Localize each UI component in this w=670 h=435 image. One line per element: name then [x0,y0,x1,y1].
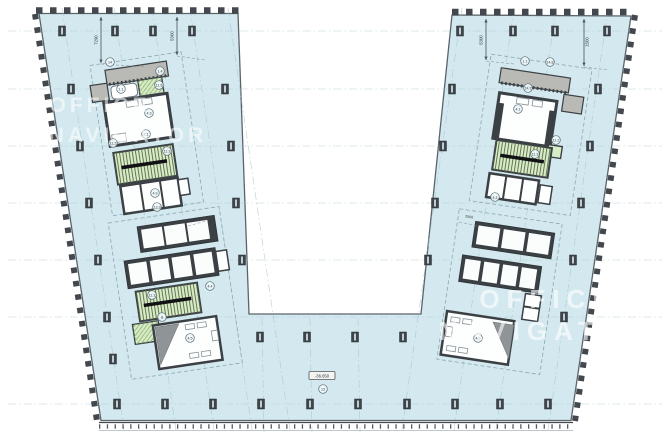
grid-label-text: 4.1 [516,107,521,111]
column-slit [499,401,501,408]
column-slit [97,257,99,264]
column-slit [454,401,456,408]
column-slit [427,257,429,264]
column-slit [88,200,90,207]
column-slit [442,143,444,150]
column-slit [402,334,404,341]
column-slit [164,401,166,408]
elevator-shaft [164,223,188,245]
column-slit [259,334,261,341]
floor-plan-page: 7290 5300 5300 1500 600 2500 -36.650 141… [0,0,670,435]
column-slit [152,28,154,35]
grid-label-text: 1.1 [119,87,124,91]
grid-label-text: 14 [108,60,112,64]
column-slit [106,314,108,321]
grid-label-text: 14.8 [547,60,554,64]
service-room [562,94,584,114]
elevator-shaft [193,252,214,276]
grid-label-text: 13 [321,387,325,391]
column-slit [451,86,453,93]
grid-label-text: 4.5 [188,336,193,340]
column-slit [554,28,556,35]
watermark-line2: NAVIGATOR [439,316,654,346]
elevator-shaft [463,259,481,281]
column-slit [70,86,72,93]
elevator-shaft [128,261,149,285]
column-slit [241,257,243,264]
column-slit [230,143,232,150]
dimension-text: 1500 [585,37,590,47]
elevator-shaft [526,233,551,255]
elevator-shaft [141,227,165,249]
grid-label-text: 1.4 [158,69,163,73]
column-slit [606,28,608,35]
floor-plan-svg: 7290 5300 5300 1500 600 2500 -36.650 141… [0,0,670,435]
elevator-shaft [481,262,499,284]
elevator-shaft [171,255,192,279]
column-slit [112,356,114,363]
grid-label-text: 4.4 [208,284,213,288]
grid-label-text: 1.1 [523,59,528,63]
grid-label-text: 13.3 [154,205,161,209]
column-slit [357,401,359,408]
grid-label-text: 11.3 [164,149,171,153]
watermark-line1: OFFICE [50,94,151,117]
grid-label-text: 11.5 [156,83,163,87]
grid-label-text: 1.1 [493,195,498,199]
side-room [216,250,230,271]
dimension-text: 5300 [479,35,484,45]
dimension-text: 7290 [94,35,99,45]
column-slit [235,200,237,207]
grid-label-text: 8 [161,315,163,319]
dimension-text: 5300 [170,31,175,41]
elevator-shaft [476,225,501,247]
column-slit [580,200,582,207]
column-slit [512,28,514,35]
grid-label-text: 11.3 [149,293,156,297]
column-slit [572,257,574,264]
column-slit [191,28,193,35]
column-slit [309,401,311,408]
column-slit [61,28,63,35]
column-slit [114,28,116,35]
elevator-shaft [501,229,526,251]
column-slit [116,401,118,408]
column-slit [589,143,591,150]
grid-label-text: 14.2 [525,86,532,90]
column-slit [597,86,599,93]
column-slit [406,401,408,408]
column-slit [434,200,436,207]
watermark-line1: OFFICE [479,284,616,314]
side-room [538,185,553,205]
elevation-text: -36.650 [315,374,330,379]
column-slit [354,334,356,341]
column-slit [306,334,308,341]
column-slit [459,28,461,35]
column-slit [224,86,226,93]
elevation-marker: -36.650 [309,372,335,380]
grid-label-text: 11.3 [532,152,539,156]
elevator-shaft [150,258,171,282]
grid-label-text: 4.9 [153,191,158,195]
watermark-line2: NAVIGATOR [49,124,208,147]
side-room [178,178,190,195]
column-slit [547,401,549,408]
grid-label-text: 11.2 [553,138,560,142]
column-slit [212,401,214,408]
column-slit [260,401,262,408]
